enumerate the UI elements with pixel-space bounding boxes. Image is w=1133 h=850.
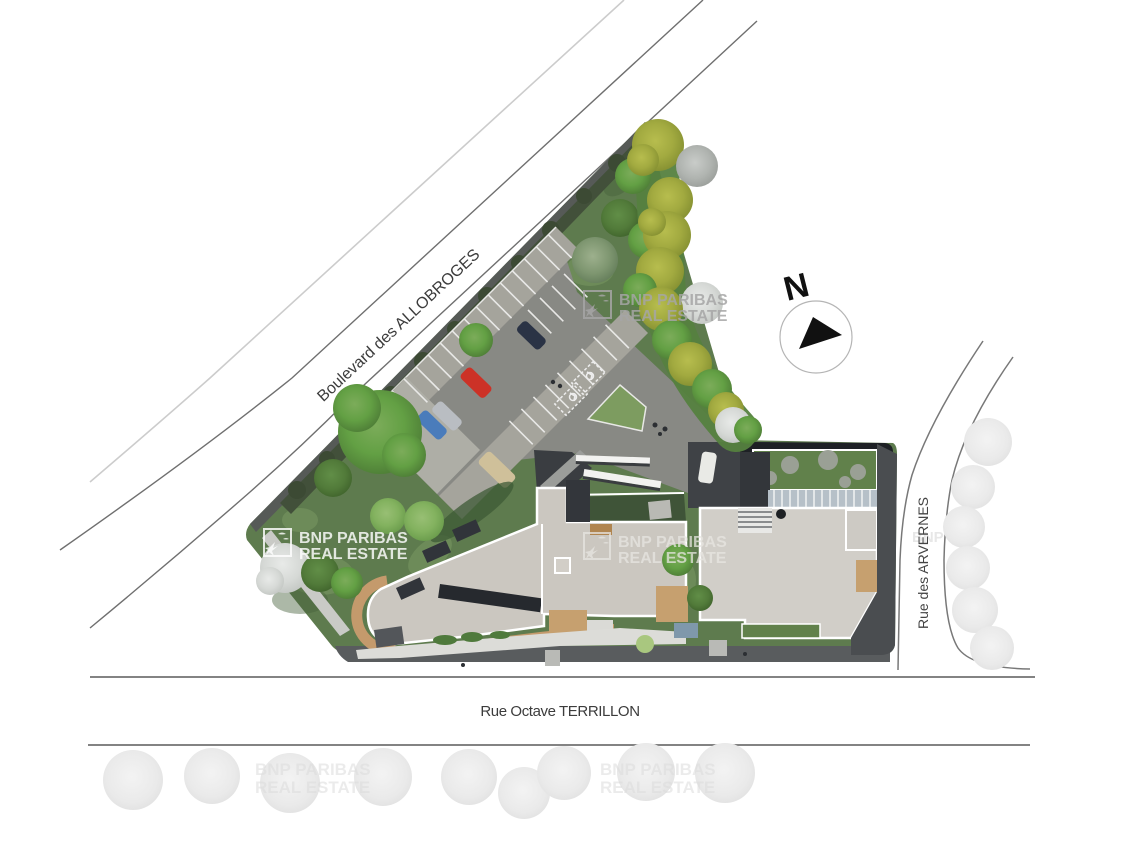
svg-text:REAL ESTATE: REAL ESTATE [618, 550, 727, 567]
svg-text:REAL ESTATE: REAL ESTATE [619, 308, 728, 325]
svg-text:Rue des ARVERNES: Rue des ARVERNES [915, 497, 931, 629]
svg-text:REAL ESTATE: REAL ESTATE [600, 778, 715, 797]
svg-text:BNP PARIBAS: BNP PARIBAS [600, 760, 716, 779]
svg-text:Rue Octave TERRILLON: Rue Octave TERRILLON [480, 703, 639, 720]
svg-text:BNP PARIBAS: BNP PARIBAS [619, 292, 728, 309]
svg-text:BNP PARIBAS: BNP PARIBAS [618, 534, 727, 551]
svg-text:REAL ESTATE: REAL ESTATE [299, 546, 408, 563]
svg-text:REAL ESTATE: REAL ESTATE [255, 778, 370, 797]
svg-text:BNP PARIBAS: BNP PARIBAS [299, 530, 408, 547]
svg-text:BNP PARIBAS: BNP PARIBAS [255, 760, 371, 779]
